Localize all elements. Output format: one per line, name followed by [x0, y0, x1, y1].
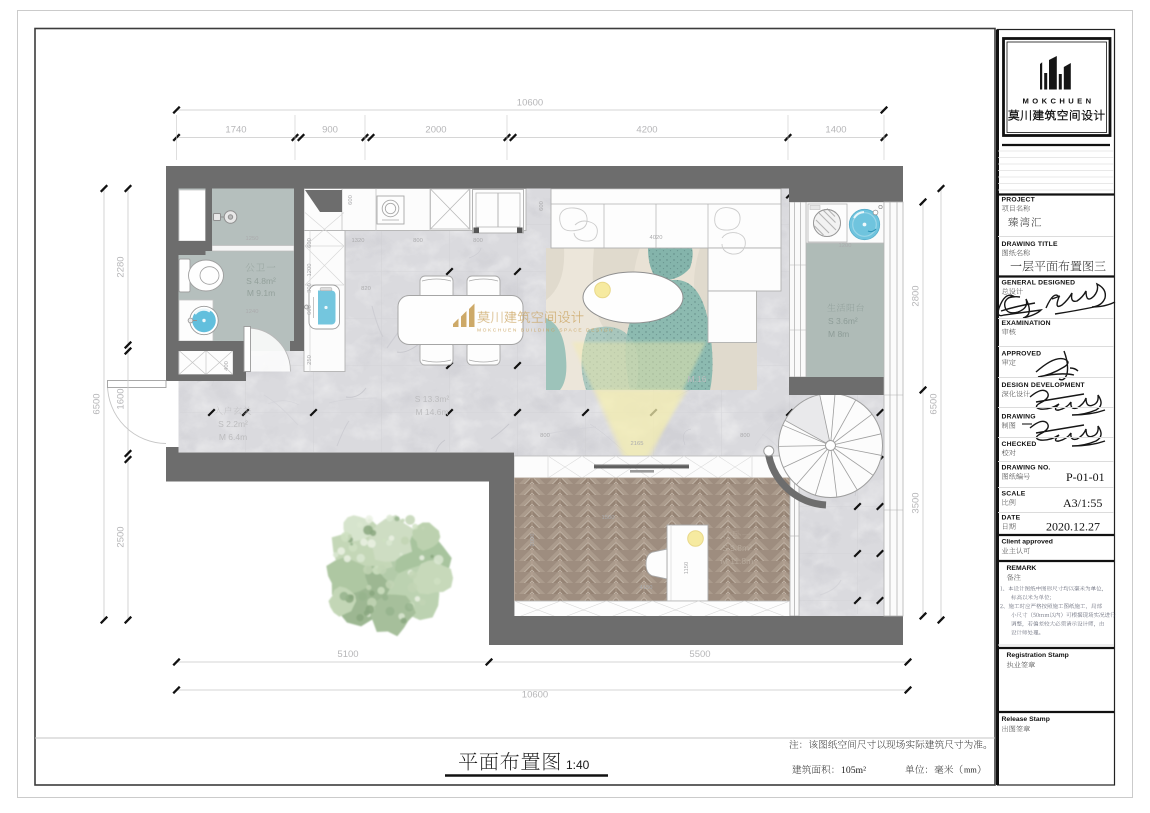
svg-text:1200: 1200 [839, 243, 852, 249]
svg-text:4150: 4150 [640, 585, 653, 591]
svg-text:M 11.8m: M 11.8m [721, 556, 753, 566]
svg-text:2000: 2000 [425, 125, 446, 136]
svg-text:DESIGN DEVELOPMENT: DESIGN DEVELOPMENT [1002, 382, 1086, 389]
svg-text:2000: 2000 [530, 534, 536, 547]
svg-text:SCALE: SCALE [1002, 491, 1026, 498]
svg-text:S 2.2m²: S 2.2m² [218, 419, 248, 429]
svg-text:S 9.8m²: S 9.8m² [722, 543, 752, 553]
svg-text:2165: 2165 [631, 441, 644, 447]
svg-text:1200: 1200 [307, 264, 313, 277]
svg-text:CHECKED: CHECKED [1002, 441, 1037, 448]
svg-text:800: 800 [413, 238, 423, 244]
svg-text:EXAMINATION: EXAMINATION [1002, 320, 1051, 327]
svg-text:1740: 1740 [225, 125, 246, 136]
svg-text:4020: 4020 [650, 235, 663, 241]
svg-text:4200: 4200 [636, 125, 657, 136]
svg-text:6500: 6500 [929, 393, 940, 414]
svg-text:6500: 6500 [92, 393, 103, 414]
svg-text:2800: 2800 [911, 285, 922, 306]
svg-text:1500: 1500 [602, 515, 615, 521]
svg-text:1250: 1250 [246, 236, 259, 242]
svg-text:300: 300 [307, 283, 313, 293]
svg-text:800: 800 [473, 238, 483, 244]
svg-text:900: 900 [322, 125, 338, 136]
svg-text:S 4.8m²: S 4.8m² [246, 276, 276, 286]
svg-text:DATE: DATE [1002, 515, 1021, 522]
svg-text:M.16: M.16 [688, 374, 707, 384]
svg-text:105m²: 105m² [841, 765, 866, 776]
svg-text:Registration Stamp: Registration Stamp [1007, 652, 1069, 659]
svg-text:S 13.3m²: S 13.3m² [415, 394, 450, 404]
svg-text:1400: 1400 [825, 125, 846, 136]
svg-text:mm: mm [964, 766, 977, 775]
svg-text:M 9.1m: M 9.1m [247, 288, 275, 298]
svg-text:5100: 5100 [337, 649, 358, 660]
svg-text:820: 820 [361, 286, 371, 292]
svg-text:MOKCHUEN BUILDING SPACE DESIGN: MOKCHUEN BUILDING SPACE DESIGN [477, 328, 614, 334]
svg-text:MOKCHUEN: MOKCHUEN [1023, 97, 1095, 106]
svg-text:800: 800 [540, 433, 550, 439]
svg-text:400: 400 [224, 361, 230, 371]
svg-text:2500: 2500 [116, 526, 127, 547]
svg-text:A3/1:55: A3/1:55 [1063, 496, 1102, 510]
svg-text:1600: 1600 [116, 388, 127, 409]
svg-text:APPROVED: APPROVED [1002, 351, 1042, 358]
svg-text:600: 600 [348, 195, 354, 205]
svg-text:1:40: 1:40 [566, 758, 590, 772]
svg-text:1240: 1240 [246, 309, 259, 315]
svg-text:3500: 3500 [911, 492, 922, 513]
svg-text:800: 800 [740, 433, 750, 439]
svg-text:S 3.6m²: S 3.6m² [828, 316, 858, 326]
svg-text:2020.12.27: 2020.12.27 [1046, 520, 1100, 534]
svg-text:M 8m: M 8m [828, 329, 849, 339]
svg-text:M 6.4m: M 6.4m [219, 432, 247, 442]
svg-text:REMARK: REMARK [1007, 565, 1037, 572]
svg-text:DRAWING NO.: DRAWING NO. [1002, 465, 1051, 472]
svg-text:DRAWING: DRAWING [1002, 414, 1036, 421]
svg-text:600: 600 [539, 201, 545, 211]
svg-text:5500: 5500 [689, 649, 710, 660]
svg-text:600: 600 [307, 305, 313, 315]
svg-text:10600: 10600 [517, 98, 543, 109]
svg-text:DRAWING TITLE: DRAWING TITLE [1002, 241, 1058, 248]
svg-text:PROJECT: PROJECT [1002, 197, 1036, 204]
svg-text:250: 250 [307, 355, 313, 365]
svg-text:Release Stamp: Release Stamp [1002, 716, 1050, 723]
svg-text:GENERAL DESIGNED: GENERAL DESIGNED [1002, 280, 1076, 287]
svg-text:M 14.6m: M 14.6m [415, 407, 448, 417]
svg-text:1150: 1150 [684, 562, 690, 574]
svg-text:P-01-01: P-01-01 [1066, 470, 1105, 484]
svg-text:10600: 10600 [522, 690, 548, 701]
svg-text:Client approved: Client approved [1002, 539, 1053, 546]
svg-text:1320: 1320 [352, 238, 365, 244]
svg-text:600: 600 [307, 238, 313, 248]
svg-text:2280: 2280 [116, 256, 127, 277]
